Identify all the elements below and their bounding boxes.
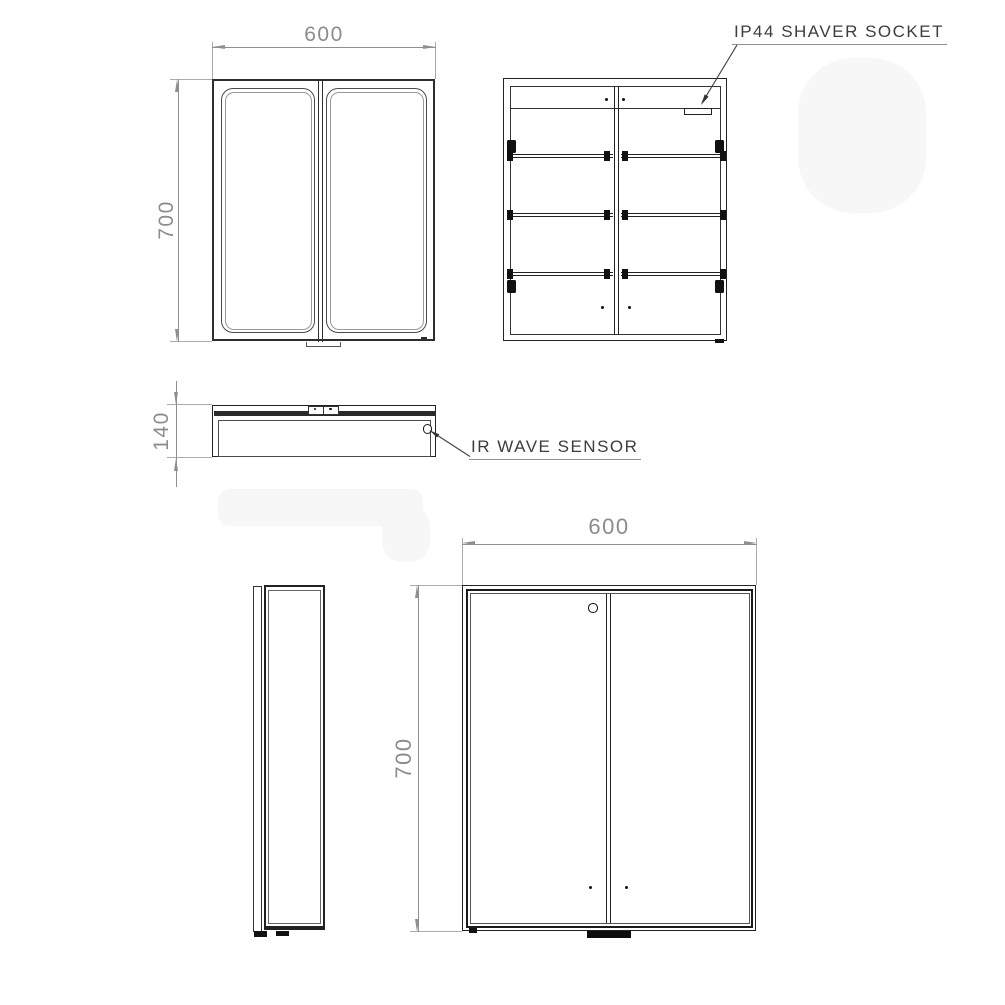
rear-width-dimension-line <box>462 544 757 545</box>
door-clip <box>323 406 339 416</box>
dimension-arrowhead-up <box>175 79 179 92</box>
dimension-arrowhead-down <box>175 329 179 342</box>
shelf-end-clip <box>604 151 610 161</box>
shelf-end-clip <box>720 269 726 279</box>
shelf-line <box>509 213 613 218</box>
dimension-arrowhead-up <box>174 458 178 471</box>
hinge-block <box>507 280 516 293</box>
depth-dimension-label: 140 <box>151 400 173 462</box>
side-door-edge <box>253 586 262 932</box>
hinge-block <box>715 280 724 293</box>
hinge-block <box>507 140 516 153</box>
door-gap-divider <box>318 79 323 342</box>
shelf-line <box>509 272 613 277</box>
technical-drawing-canvas: 600 700 <box>0 0 1005 1005</box>
ir-sensor-label: IR WAVE SENSOR <box>469 437 641 460</box>
front-width-dimension-label: 600 <box>294 24 354 46</box>
dimension-arrowhead-right <box>423 45 436 49</box>
side-bottom-edge <box>265 926 325 930</box>
clip-screw-dot <box>329 408 332 411</box>
wall-bracket-bar <box>587 931 631 938</box>
shelf-line <box>509 154 613 159</box>
shelf-line <box>621 213 725 218</box>
hinge-block <box>715 140 724 153</box>
shelf-end-clip <box>622 269 628 279</box>
rear-screw-dot <box>625 886 628 889</box>
screw-dot <box>622 98 625 101</box>
rear-screw-dot <box>589 886 592 889</box>
rear-panel-divider <box>606 594 611 923</box>
rear-width-dimension-label: 600 <box>579 516 639 538</box>
shelf-end-clip <box>507 210 513 220</box>
front-width-dimension-line <box>212 47 436 48</box>
bottom-corner-nub <box>469 928 477 933</box>
side-body-inner-line <box>268 590 321 924</box>
shaver-socket-label: IP44 SHAVER SOCKET <box>732 22 947 45</box>
bottom-corner-nub <box>421 337 427 341</box>
rear-height-dimension-label: 700 <box>393 727 415 789</box>
center-partition <box>614 86 619 335</box>
bottom-view-inner-box <box>218 420 431 457</box>
shelf-end-clip <box>604 269 610 279</box>
shelf-end-clip <box>507 269 513 279</box>
shelf-end-clip <box>720 210 726 220</box>
watermark-blob <box>798 58 926 213</box>
right-mirror-door-panel-inner-line <box>330 92 424 330</box>
dimension-arrowhead-down <box>415 919 419 932</box>
ir-sensor-circle <box>423 424 433 434</box>
left-mirror-door-panel-inner-line <box>225 92 312 330</box>
shelf-line <box>621 272 725 277</box>
foot-block <box>276 931 289 936</box>
door-clip <box>308 406 324 416</box>
bottom-corner-nub <box>715 339 724 343</box>
watermark-blob <box>382 506 430 562</box>
foot-block <box>254 931 267 937</box>
cable-hole-circle <box>588 603 598 613</box>
dimension-arrowhead-right <box>744 541 757 545</box>
dimension-arrowhead-left <box>212 45 225 49</box>
dimension-arrowhead-up <box>415 585 419 598</box>
bottom-handle-bracket <box>306 342 341 347</box>
shelf-end-clip <box>622 151 628 161</box>
shelf-end-clip <box>604 210 610 220</box>
dimension-arrowhead-down <box>174 392 178 405</box>
shelf-end-clip <box>622 210 628 220</box>
front-height-dimension-label: 700 <box>156 189 178 251</box>
dimension-arrowhead-left <box>462 541 475 545</box>
rear-height-dimension-line <box>418 585 419 932</box>
shaver-socket-outline <box>684 108 712 116</box>
shelf-line <box>621 154 725 159</box>
